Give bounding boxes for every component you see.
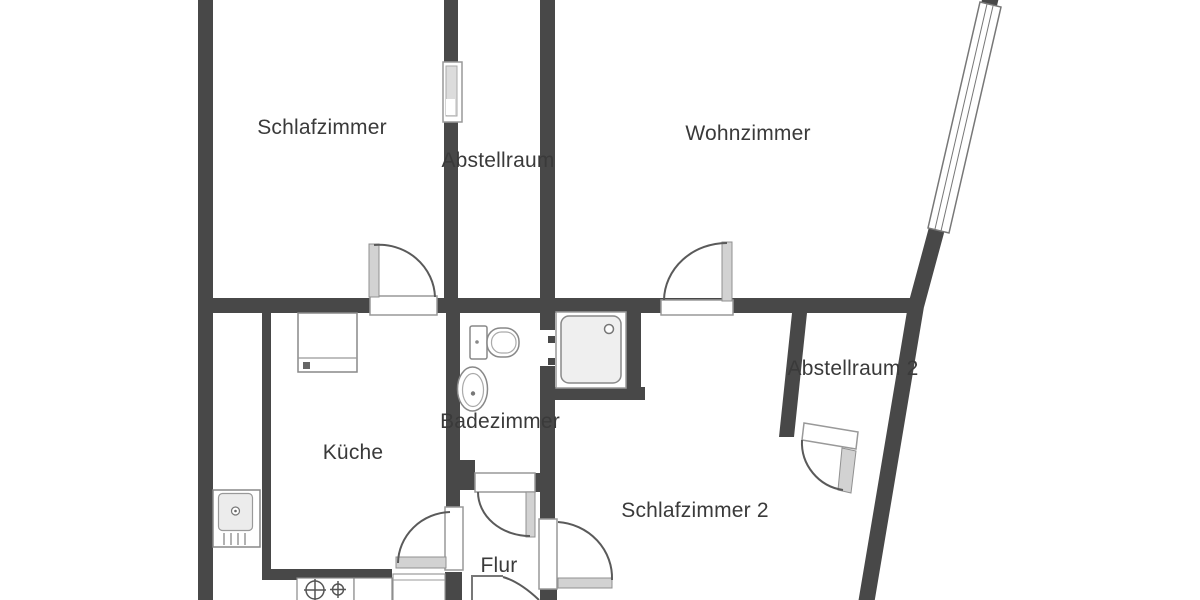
door-kueche bbox=[396, 507, 463, 570]
door-abstellraum-2 bbox=[802, 423, 858, 493]
room-label-abstellraum-2: Abstellraum 2 bbox=[788, 357, 919, 381]
shower-opening bbox=[540, 330, 555, 366]
room-label-wohnzimmer: Wohnzimmer bbox=[685, 122, 810, 146]
kitchen-counter bbox=[298, 313, 357, 372]
stove-burners bbox=[297, 574, 445, 600]
shower bbox=[556, 312, 626, 388]
small-wall-window bbox=[443, 62, 462, 122]
kitchen-sink bbox=[213, 490, 260, 547]
room-label-badezimmer: Badezimmer bbox=[440, 410, 560, 434]
wall-kueche-door-stub bbox=[445, 572, 462, 600]
diagonal-window bbox=[928, 2, 1001, 233]
toilet bbox=[470, 326, 519, 359]
wall-main-horizontal bbox=[198, 298, 920, 313]
room-label-schlafzimmer-2: Schlafzimmer 2 bbox=[621, 499, 769, 523]
floor-plan-drawing bbox=[0, 0, 1200, 600]
room-label-flur: Flur bbox=[481, 554, 518, 578]
wall-kitchen-thin bbox=[262, 313, 271, 573]
door-entrance bbox=[472, 576, 539, 600]
door-schlafzimmer bbox=[369, 244, 437, 315]
door-schlafzimmer-2 bbox=[539, 519, 612, 589]
wall-sz2-door-hinge-block bbox=[540, 588, 557, 600]
walls bbox=[198, 0, 992, 600]
washbasin bbox=[458, 367, 488, 411]
door-wohnzimmer bbox=[661, 242, 733, 315]
floor-plan: Schlafzimmer Abstellraum Wohnzimmer Abst… bbox=[0, 0, 1200, 600]
door-badezimmer bbox=[475, 473, 535, 537]
room-label-schlafzimmer: Schlafzimmer bbox=[257, 116, 387, 140]
room-label-abstellraum: Abstellraum bbox=[441, 149, 554, 173]
wall-badezimmer-south-notch bbox=[460, 460, 475, 490]
room-label-kueche: Küche bbox=[323, 441, 384, 465]
